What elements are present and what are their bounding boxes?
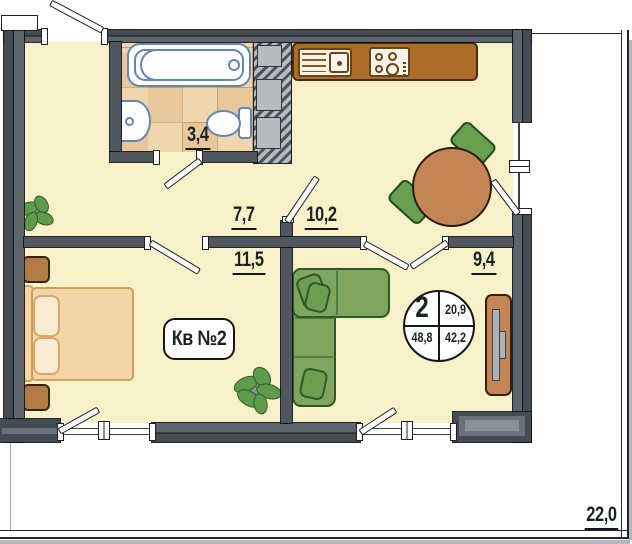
door-entrance xyxy=(49,0,104,34)
terrace-edge-bottom-outer xyxy=(0,537,629,539)
wall-bottom-mid xyxy=(152,423,360,442)
jamb-cap xyxy=(149,423,156,441)
floor-plan: 3,4 7,7 10,2 11,5 9,4 22,0 Кв №2 2 20,9 … xyxy=(0,0,632,544)
jamb-cap xyxy=(153,150,160,165)
stove-burner xyxy=(375,65,383,73)
plant-bedroom xyxy=(231,367,281,415)
living-area-label: 9,4 xyxy=(468,248,500,275)
terrace-edge-left xyxy=(10,442,11,530)
vent-shaft-box xyxy=(256,117,281,149)
bathtub-curve xyxy=(140,49,170,81)
terrace-shadow-bottom xyxy=(0,540,630,544)
apartment-name-label: Кв №2 xyxy=(172,327,227,351)
sink-drain-dot xyxy=(337,61,342,66)
stove-burner xyxy=(388,52,397,61)
jamb-cap xyxy=(41,28,48,45)
wall-right-upper xyxy=(513,30,531,122)
badge-hline xyxy=(405,325,473,327)
stove-burner xyxy=(375,53,383,61)
kitchen-area-label: 10,2 xyxy=(300,203,343,230)
window-marker-balcony xyxy=(509,160,530,173)
jamb-cap xyxy=(202,236,209,250)
wall-top-main xyxy=(105,30,531,42)
wall-bathroom-left xyxy=(110,42,121,152)
wall-bottom-left-pier-step xyxy=(2,428,58,434)
bedroom-area-label: 11,5 xyxy=(228,248,270,275)
sink-drainer-lines xyxy=(302,53,326,72)
apartment-name-box: Кв №2 xyxy=(163,318,235,360)
terrace-edge-right-inner xyxy=(621,30,622,539)
terrace-edge-bottom-inner xyxy=(0,530,628,531)
bed-pillow xyxy=(33,295,60,337)
washbasin-drain xyxy=(125,117,134,126)
bathroom-tile xyxy=(148,88,183,123)
badge-bottom-right: 42,2 xyxy=(443,330,468,345)
badge-bottom-left: 48,8 xyxy=(409,330,435,345)
nightstand xyxy=(22,384,50,411)
dining-table xyxy=(412,147,492,227)
wall-interior-horizontal-a xyxy=(24,237,147,247)
wall-bathroom-bottom-right xyxy=(200,152,257,162)
hallway-area-label: 7,7 xyxy=(228,203,260,230)
wall-corner-step xyxy=(465,420,519,431)
window-marker-bedroom xyxy=(98,421,110,440)
entrance-landing xyxy=(1,15,38,31)
vent-shaft-box xyxy=(257,45,282,67)
stove-burner xyxy=(386,63,399,76)
wall-hall-kitchen xyxy=(281,221,292,423)
vent-shaft-box xyxy=(256,79,282,111)
sofa-seam xyxy=(295,317,333,319)
sofa-seam xyxy=(336,271,338,315)
bed-pillow xyxy=(33,337,60,375)
badge-number: 2 xyxy=(410,292,434,324)
wall-left xyxy=(4,30,24,442)
wardrobe-door xyxy=(499,331,506,359)
badge-top-right: 20,9 xyxy=(443,302,468,317)
apartment-info-badge: 2 20,9 48,8 42,2 xyxy=(403,290,475,362)
wall-right-lower xyxy=(513,213,531,442)
nightstand xyxy=(22,256,50,283)
wall-bathroom-bottom-left xyxy=(110,152,157,162)
sofa-seam xyxy=(295,356,333,358)
bathtub-drain xyxy=(228,59,240,71)
stove-knob-dots xyxy=(403,62,406,75)
terrace-edge-top xyxy=(531,33,621,34)
wall-interior-horizontal-b xyxy=(205,237,363,247)
terrace-area-label: 22,0 xyxy=(580,503,623,530)
window-marker-living xyxy=(401,421,413,440)
jamb-cap xyxy=(450,423,457,441)
bathroom-area-label: 3,4 xyxy=(182,123,214,150)
wall-interior-horizontal-c xyxy=(445,237,513,247)
